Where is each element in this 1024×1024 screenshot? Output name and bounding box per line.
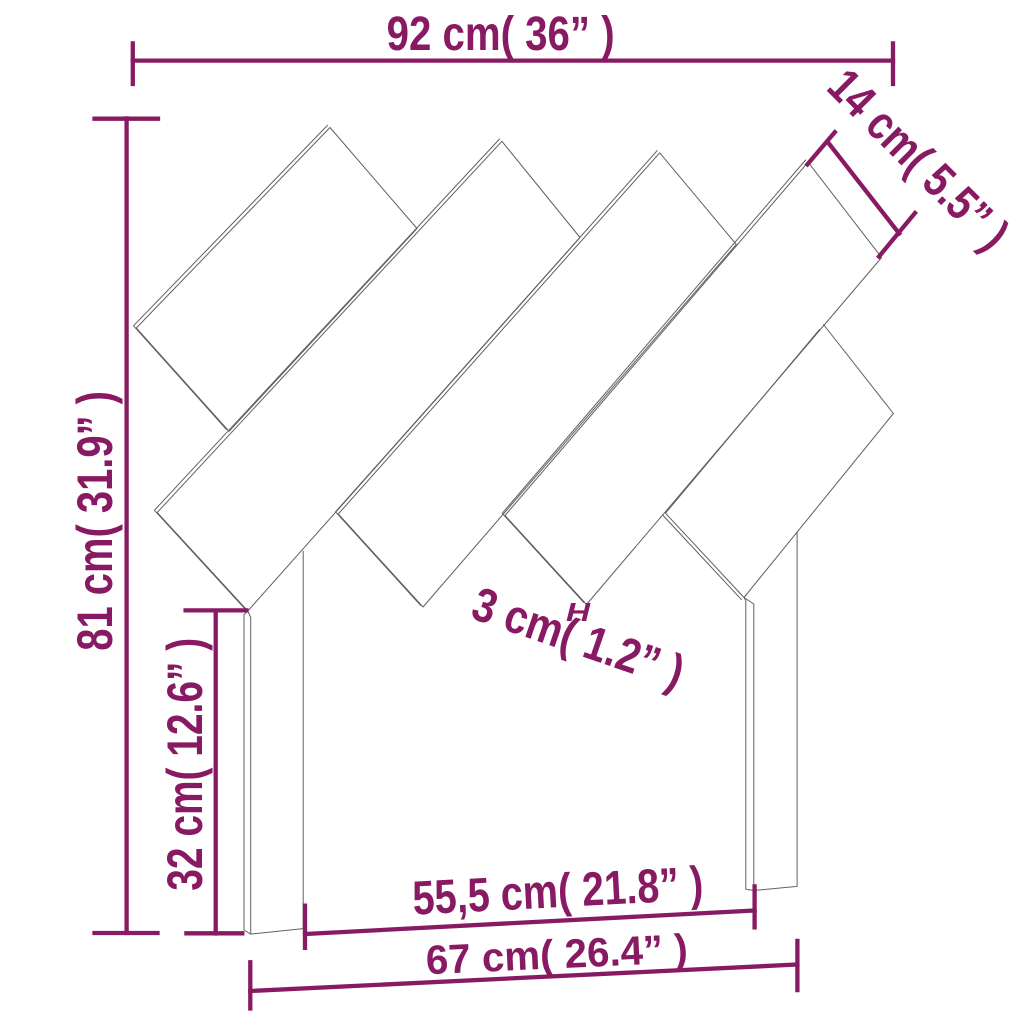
svg-text:92 cm( 36” ): 92 cm( 36” ) [387, 8, 615, 61]
svg-text:81 cm( 31.9” ): 81 cm( 31.9” ) [67, 391, 123, 651]
svg-text:32 cm( 12.6” ): 32 cm( 12.6” ) [157, 638, 213, 891]
svg-text:H: H [566, 599, 591, 627]
